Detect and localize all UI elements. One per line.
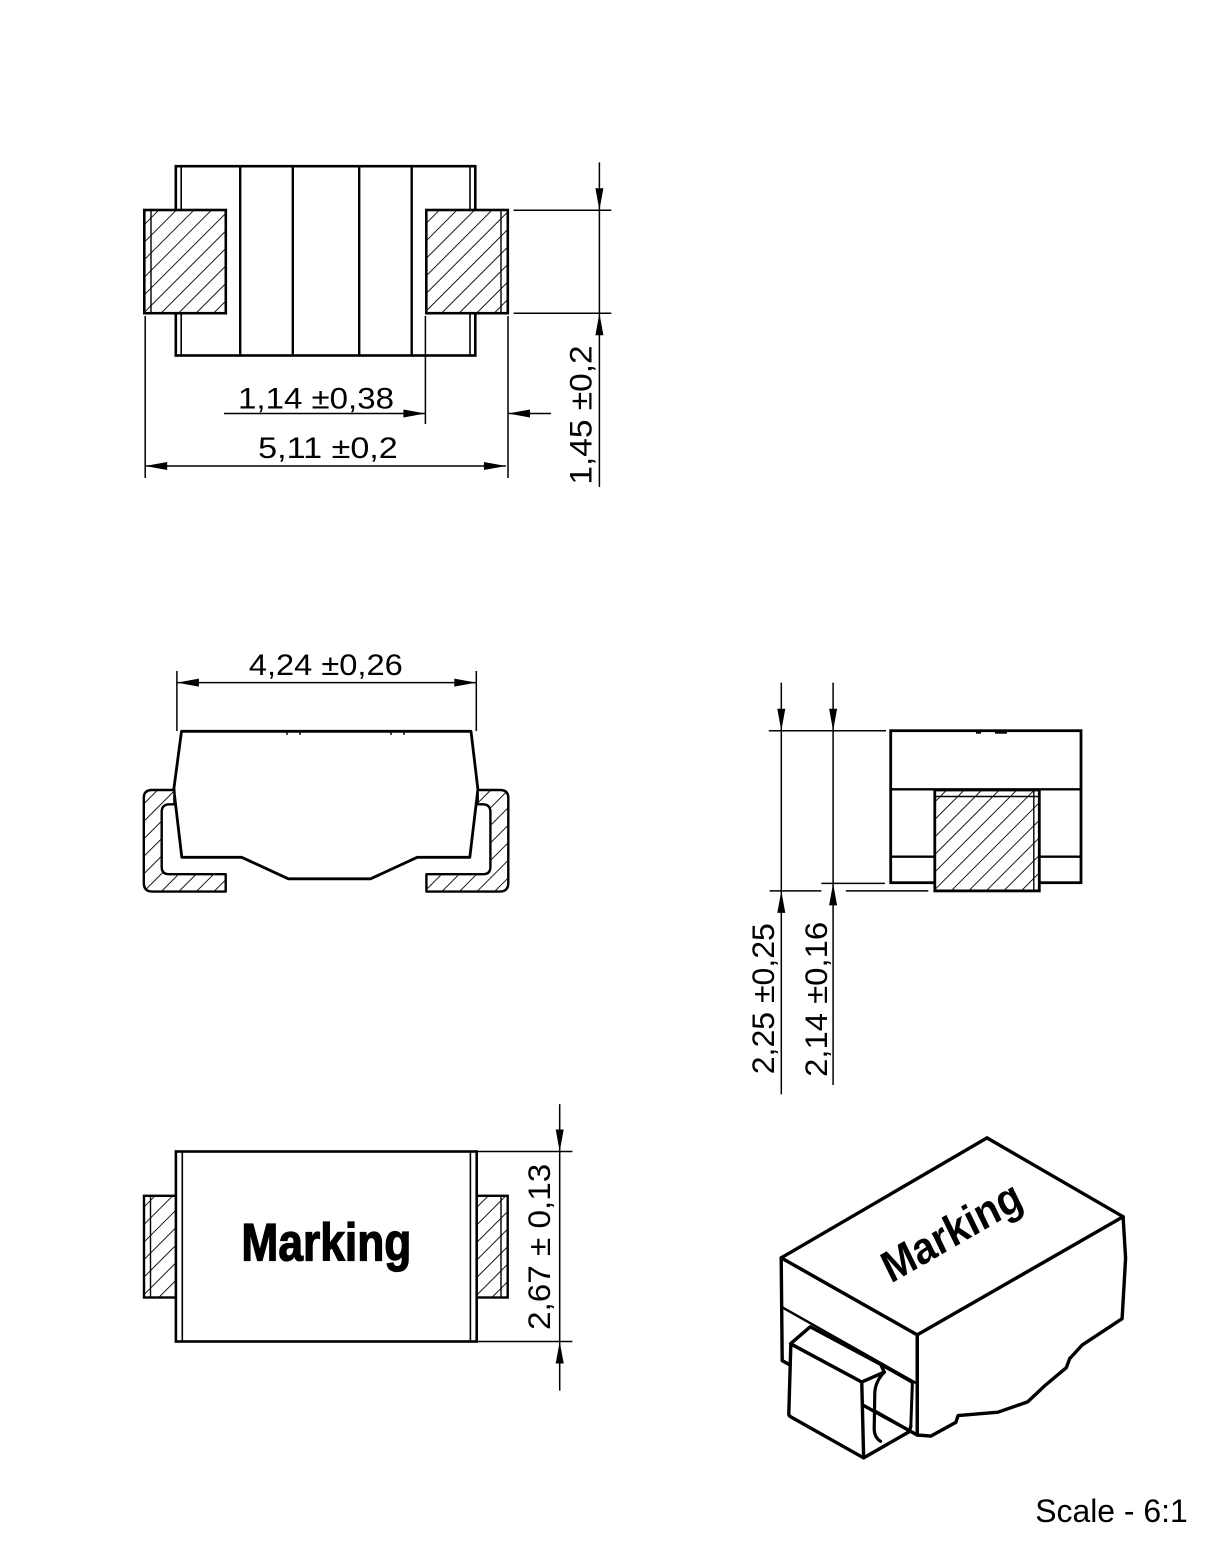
svg-text:5,11 ±0,2: 5,11 ±0,2 xyxy=(258,432,398,465)
svg-text:2,14 ±0,16: 2,14 ±0,16 xyxy=(798,922,834,1077)
svg-text:2,67 ± 0,13: 2,67 ± 0,13 xyxy=(521,1164,557,1330)
svg-text:2,25 ±0,25: 2,25 ±0,25 xyxy=(745,923,781,1074)
svg-text:4,24 ±0,26: 4,24 ±0,26 xyxy=(249,649,403,682)
svg-text:1,14 ±0,38: 1,14 ±0,38 xyxy=(238,383,394,416)
svg-text:1,45 ±0,2: 1,45 ±0,2 xyxy=(563,345,599,484)
svg-text:Scale - 6:1: Scale - 6:1 xyxy=(1035,1493,1188,1529)
svg-text:Marking: Marking xyxy=(241,1214,411,1273)
